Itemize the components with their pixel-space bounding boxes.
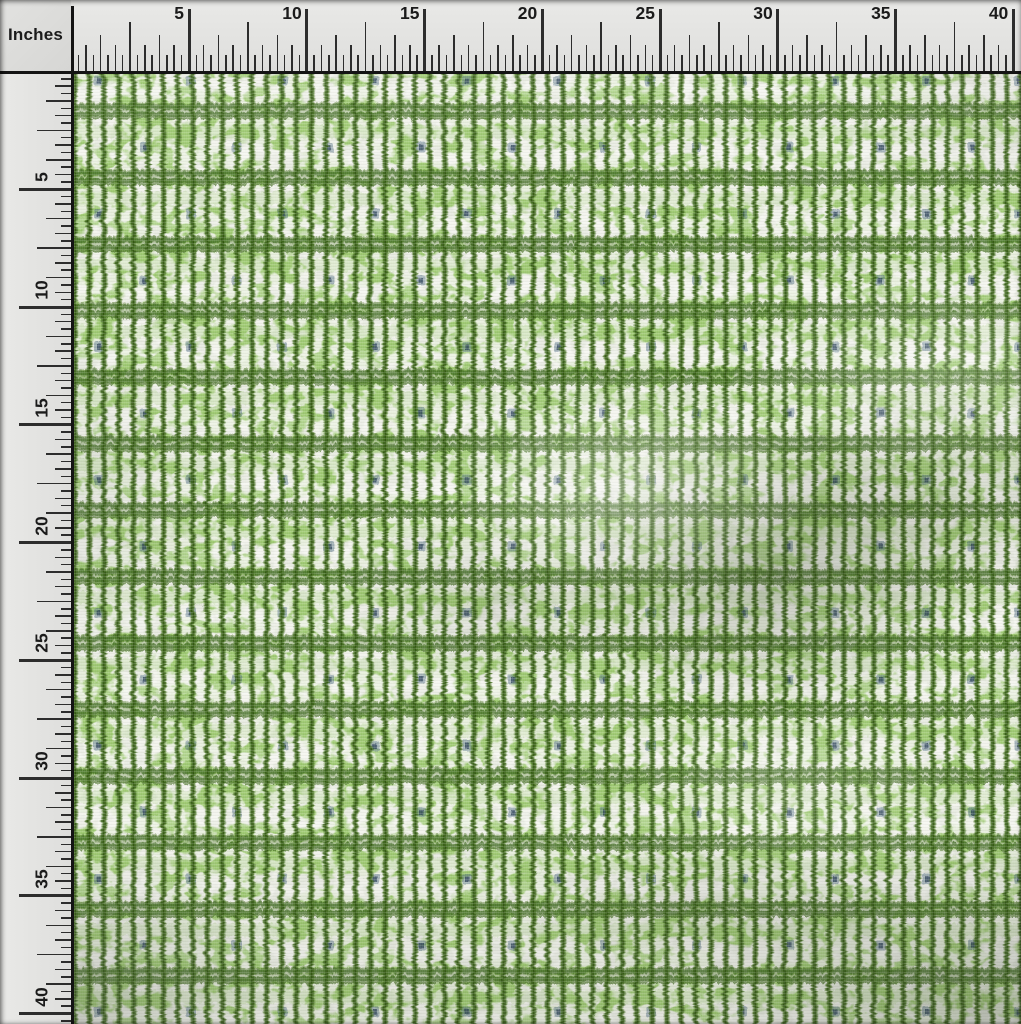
ruler-left-tick <box>61 873 71 875</box>
ruler-top-tick <box>836 22 838 71</box>
ruler-top-tick <box>865 35 867 71</box>
ruler-top-tick <box>983 35 985 71</box>
ruler-top-tick <box>851 45 853 71</box>
ruler-left-tick <box>61 682 71 684</box>
ruler-top-tick <box>512 35 514 71</box>
ruler-top-number: 10 <box>282 5 301 23</box>
ruler-left-tick <box>61 93 71 95</box>
ruler-top-tick <box>674 45 676 71</box>
ruler-top-number: 20 <box>518 5 537 23</box>
ruler-left-tick <box>61 446 71 448</box>
ruler-left-tick <box>46 336 71 338</box>
ruler-left-tick <box>61 696 71 698</box>
ruler-left-tick <box>46 395 71 397</box>
ruler-top-tick <box>380 45 382 71</box>
ruler-top-tick <box>254 55 256 71</box>
ruler-left-tick <box>55 557 71 559</box>
ruler-top-tick <box>954 22 956 71</box>
ruler-left-tick <box>61 402 71 404</box>
ruler-top-tick <box>335 35 337 71</box>
ruler-left-tick <box>55 439 71 441</box>
ruler-top-tick <box>291 45 293 71</box>
ruler-top-tick <box>438 45 440 71</box>
ruler-left-tick <box>19 894 71 897</box>
ruler-top-tick <box>402 55 404 71</box>
ruler-left-tick <box>55 969 71 971</box>
ruler-left-tick <box>61 240 71 242</box>
ruler-top-tick <box>630 35 632 71</box>
ruler-top-tick <box>343 55 345 71</box>
ruler-left-tick <box>55 85 71 87</box>
ruler-top-tick <box>733 45 735 71</box>
ruler-left-tick <box>19 1012 71 1015</box>
ruler-left-tick <box>61 78 71 80</box>
ruler-top-tick <box>262 45 264 71</box>
ruler-left-tick <box>61 461 71 463</box>
ruler-top-tick <box>667 55 669 71</box>
ruler-left: 510152025303540 <box>0 0 71 1024</box>
ruler-left-tick <box>46 748 71 750</box>
ruler-left-tick <box>55 792 71 794</box>
ruler-left-tick <box>61 211 71 213</box>
ruler-left-tick <box>55 380 71 382</box>
ruler-top-tick <box>468 45 470 71</box>
ruler-top-tick <box>939 45 941 71</box>
ruler-top-tick <box>924 35 926 71</box>
ruler-left-tick <box>46 159 71 161</box>
ruler-top-tick <box>556 45 558 71</box>
ruler-top-tick <box>85 45 87 71</box>
ruler-left-tick <box>61 358 71 360</box>
ruler-left-tick <box>61 152 71 154</box>
ruler-left-tick <box>55 350 71 352</box>
ruler-left-tick <box>61 623 71 625</box>
ruler-left-tick <box>61 108 71 110</box>
ruler-top-tick <box>586 45 588 71</box>
ruler-left-tick <box>61 534 71 536</box>
ruler-top-tick <box>497 45 499 71</box>
ruler-top-tick <box>240 55 242 71</box>
ruler-left-tick <box>55 233 71 235</box>
ruler-left-tick <box>46 630 71 632</box>
ruler-left-tick <box>61 726 71 728</box>
ruler-top-tick <box>519 55 521 71</box>
ruler-left-tick <box>61 328 71 330</box>
ruler-left-tick <box>55 586 71 588</box>
ruler-top-tick <box>446 55 448 71</box>
ruler-left-tick <box>55 645 71 647</box>
ruler-left-tick <box>46 100 71 102</box>
ruler-left-tick <box>19 188 71 191</box>
ruler-left-tick <box>61 858 71 860</box>
ruler-left-tick <box>61 431 71 433</box>
ruler-left-tick <box>55 203 71 205</box>
ruler-top-tick <box>755 55 757 71</box>
ruler-top-tick <box>210 55 212 71</box>
ruler-top-tick <box>151 55 153 71</box>
ruler-left-tick <box>61 387 71 389</box>
ruler-top-tick <box>527 45 529 71</box>
ruler-left-tick <box>55 321 71 323</box>
ruler-left-tick <box>37 601 71 603</box>
ruler-left-tick <box>61 225 71 227</box>
ruler-left-tick <box>55 498 71 500</box>
ruler-left-number: 40 <box>33 987 51 1006</box>
ruler-left-tick <box>61 741 71 743</box>
ruler-left-tick <box>61 314 71 316</box>
ruler-left-tick <box>61 991 71 993</box>
ruler-top-tick <box>490 55 492 71</box>
ruler-top-tick <box>1012 9 1015 71</box>
ruler-top-tick <box>858 55 860 71</box>
ruler-top-tick <box>461 55 463 71</box>
ruler-left-number: 25 <box>33 634 51 653</box>
ruler-left-tick <box>46 277 71 279</box>
fabric-swatch <box>74 74 1021 1024</box>
ruler-left-tick <box>61 932 71 934</box>
ruler-left-tick <box>61 947 71 949</box>
ruler-left-tick <box>55 763 71 765</box>
ruler-left-tick <box>55 115 71 117</box>
ruler-top-tick <box>313 55 315 71</box>
ruler-left-tick <box>61 181 71 183</box>
ruler-top-tick <box>968 45 970 71</box>
ruler-top-tick <box>505 55 507 71</box>
ruler-left-tick <box>61 122 71 124</box>
ruler-top-tick <box>247 22 249 71</box>
ruler-top-tick <box>645 45 647 71</box>
ruler-left-tick <box>19 541 71 544</box>
ruler-top-tick <box>173 45 175 71</box>
ruler-top-tick <box>902 55 904 71</box>
ruler-left-tick <box>37 954 71 956</box>
ruler-top-tick <box>946 55 948 71</box>
ruler-top-tick <box>932 55 934 71</box>
ruler-top-tick <box>1005 55 1007 71</box>
ruler-left-tick <box>55 851 71 853</box>
ruler-left-number: 5 <box>33 172 51 182</box>
ruler-top-tick <box>93 55 95 71</box>
ruler-left-tick <box>46 925 71 927</box>
ruler-top-number: 35 <box>871 5 890 23</box>
ruler-top-tick <box>696 55 698 71</box>
ruler-left-tick <box>61 917 71 919</box>
ruler-left-tick <box>46 453 71 455</box>
ruler-top-tick <box>78 55 80 71</box>
ruler-top-number: 30 <box>753 5 772 23</box>
ruler-left-tick <box>61 549 71 551</box>
ruler-left-tick <box>61 799 71 801</box>
ruler-left-tick <box>61 770 71 772</box>
ruler-left-tick <box>37 836 71 838</box>
ruler-left-number: 35 <box>33 869 51 888</box>
ruler-left-tick <box>55 615 71 617</box>
ruler-left-tick <box>61 255 71 257</box>
ruler-top-tick <box>564 55 566 71</box>
ruler-left-number: 10 <box>33 280 51 299</box>
ruler-top-tick <box>181 55 183 71</box>
ruler-top-tick <box>321 45 323 71</box>
ruler-top-tick <box>615 45 617 71</box>
ruler-left-tick <box>61 961 71 963</box>
ruler-top-tick <box>593 55 595 71</box>
ruler-left-tick <box>55 704 71 706</box>
ruler-top-number: 15 <box>400 5 419 23</box>
ruler-left-tick <box>61 888 71 890</box>
ruler-top-tick <box>622 55 624 71</box>
ruler-top-tick <box>122 55 124 71</box>
ruler-left-tick <box>61 785 71 787</box>
ruler-top-tick <box>718 22 720 71</box>
ruler-top-tick <box>776 9 779 71</box>
ruler-top-tick <box>880 45 882 71</box>
ruler-left-number: 20 <box>33 516 51 535</box>
ruler-left-tick <box>55 468 71 470</box>
ruler-left-tick <box>55 262 71 264</box>
ruler-left-tick <box>61 755 71 757</box>
ruler-left-tick <box>61 166 71 168</box>
ruler-top: 510152025303540 <box>0 0 1021 71</box>
ruler-top-tick <box>652 55 654 71</box>
ruler-top-tick <box>277 35 279 71</box>
ruler-top-tick <box>608 55 610 71</box>
ruler-top-tick <box>998 45 1000 71</box>
ruler-left-tick <box>55 939 71 941</box>
ruler-top-tick <box>350 45 352 71</box>
ruler-top-tick <box>792 45 794 71</box>
ruler-top-tick <box>873 55 875 71</box>
ruler-top-tick <box>541 9 544 71</box>
ruler-left-tick <box>61 343 71 345</box>
ruler-left-tick <box>55 409 71 411</box>
ruler-left-tick <box>61 844 71 846</box>
ruler-top-tick <box>549 55 551 71</box>
ruler-top-tick <box>748 35 750 71</box>
ruler-left-tick <box>46 218 71 220</box>
ruler-top-tick <box>387 55 389 71</box>
ruler-left-tick <box>37 483 71 485</box>
ruler-left-tick <box>46 512 71 514</box>
ruler-top-tick <box>711 55 713 71</box>
ruler-left-tick <box>61 579 71 581</box>
ruler-left-tick <box>61 196 71 198</box>
ruler-left-tick <box>61 652 71 654</box>
ruler-top-tick <box>203 45 205 71</box>
ruler-top-tick <box>762 45 764 71</box>
ruler-top-tick <box>299 55 301 71</box>
ruler-top-tick <box>814 55 816 71</box>
ruler-left-tick <box>61 373 71 375</box>
ruler-left-tick <box>19 777 71 780</box>
ruler-left-tick <box>61 976 71 978</box>
ruler-top-tick <box>578 55 580 71</box>
ruler-top-tick <box>409 45 411 71</box>
ruler-left-tick <box>61 667 71 669</box>
ruler-top-tick <box>534 55 536 71</box>
ruler-left-tick <box>37 365 71 367</box>
fabric-swatch-photo: 510152025303540 510152025303540 Inches <box>0 0 1021 1024</box>
ruler-top-tick <box>829 55 831 71</box>
ruler-left-tick <box>61 476 71 478</box>
ruler-left-tick <box>37 247 71 249</box>
ruler-left-tick <box>55 674 71 676</box>
ruler-left-tick <box>61 608 71 610</box>
ruler-top-tick <box>637 55 639 71</box>
ruler-top-tick <box>725 55 727 71</box>
ruler-left-tick <box>55 910 71 912</box>
ruler-unit-label: Inches <box>8 25 63 45</box>
ruler-top-tick <box>976 55 978 71</box>
ruler-left-tick <box>61 137 71 139</box>
ruler-top-number: 25 <box>636 5 655 23</box>
ruler-left-tick <box>61 490 71 492</box>
ruler-top-tick <box>372 55 374 71</box>
ruler-top-tick <box>799 55 801 71</box>
ruler-top-tick <box>821 45 823 71</box>
ruler-top-tick <box>784 55 786 71</box>
ruler-top-tick <box>475 55 477 71</box>
ruler-top-tick <box>453 35 455 71</box>
ruler-top-number: 40 <box>989 5 1008 23</box>
ruler-top-tick <box>159 35 161 71</box>
ruler-top-tick <box>423 9 426 71</box>
ruler-top-tick <box>843 55 845 71</box>
ruler-top-tick <box>571 35 573 71</box>
ruler-top-tick <box>394 35 396 71</box>
ruler-left-tick <box>61 284 71 286</box>
ruler-left-tick <box>55 998 71 1000</box>
ruler-left-tick <box>46 689 71 691</box>
ruler-left-tick <box>46 983 71 985</box>
ruler-left-number: 30 <box>33 751 51 770</box>
ruler-top-tick <box>100 35 102 71</box>
ruler-left-tick <box>55 821 71 823</box>
ruler-left-tick <box>61 417 71 419</box>
ruler-left-tick <box>55 292 71 294</box>
ruler-left-number: 15 <box>33 398 51 417</box>
ruler-left-tick <box>19 423 71 426</box>
ruler-top-tick <box>129 22 131 71</box>
ruler-left-tick <box>61 520 71 522</box>
ruler-top-number: 5 <box>174 5 184 23</box>
ruler-left-tick <box>55 733 71 735</box>
ruler-top-tick <box>770 55 772 71</box>
ruler-top-tick <box>431 55 433 71</box>
ruler-left-tick <box>61 637 71 639</box>
ruler-corner: Inches <box>0 0 71 71</box>
ruler-left-tick <box>61 593 71 595</box>
ruler-top-tick <box>218 35 220 71</box>
ruler-left-tick <box>61 902 71 904</box>
ruler-top-tick <box>703 45 705 71</box>
ruler-left-tick <box>61 299 71 301</box>
ruler-top-tick <box>365 22 367 71</box>
ruler-left-tick <box>37 130 71 132</box>
ruler-left-tick <box>61 1005 71 1007</box>
ruler-top-tick <box>225 55 227 71</box>
ruler-left-tick <box>55 880 71 882</box>
ruler-top-tick <box>659 9 662 71</box>
ruler-top-tick <box>990 55 992 71</box>
ruler-top-tick <box>681 55 683 71</box>
ruler-top-tick <box>909 45 911 71</box>
ruler-left-tick <box>55 144 71 146</box>
ruler-top-tick <box>600 22 602 71</box>
ruler-top-tick <box>107 55 109 71</box>
ruler-top-tick <box>416 55 418 71</box>
ruler-left-tick <box>37 718 71 720</box>
ruler-top-tick <box>894 9 897 71</box>
ruler-top-tick <box>137 55 139 71</box>
ruler-top-tick <box>806 35 808 71</box>
ruler-top-tick <box>305 9 308 71</box>
ruler-left-tick <box>61 505 71 507</box>
ruler-left-tick <box>46 571 71 573</box>
ruler-left-tick <box>61 564 71 566</box>
ruler-top-tick <box>887 55 889 71</box>
ruler-top-tick <box>269 55 271 71</box>
ruler-top-tick <box>328 55 330 71</box>
ruler-top-tick <box>483 22 485 71</box>
ruler-top-tick <box>144 45 146 71</box>
ruler-top-tick <box>166 55 168 71</box>
ruler-top-tick <box>196 55 198 71</box>
ruler-left-tick <box>46 807 71 809</box>
ruler-left-tick <box>19 659 71 662</box>
ruler-top-tick <box>917 55 919 71</box>
ruler-left-tick <box>61 814 71 816</box>
ruler-top-tick <box>357 55 359 71</box>
ruler-left-tick <box>55 174 71 176</box>
ruler-left-tick <box>19 306 71 309</box>
ruler-top-tick <box>284 55 286 71</box>
ruler-top-tick <box>961 55 963 71</box>
ruler-top-tick <box>188 9 191 71</box>
ruler-left-tick <box>61 829 71 831</box>
ruler-top-tick <box>232 45 234 71</box>
ruler-top-tick <box>689 35 691 71</box>
fabric-wrinkle-shading <box>74 74 1021 1024</box>
ruler-left-tick <box>61 1020 71 1022</box>
ruler-top-tick <box>115 45 117 71</box>
ruler-left-tick <box>61 269 71 271</box>
ruler-left-tick <box>61 711 71 713</box>
ruler-left-tick <box>55 527 71 529</box>
ruler-top-tick <box>740 55 742 71</box>
ruler-left-tick <box>46 866 71 868</box>
